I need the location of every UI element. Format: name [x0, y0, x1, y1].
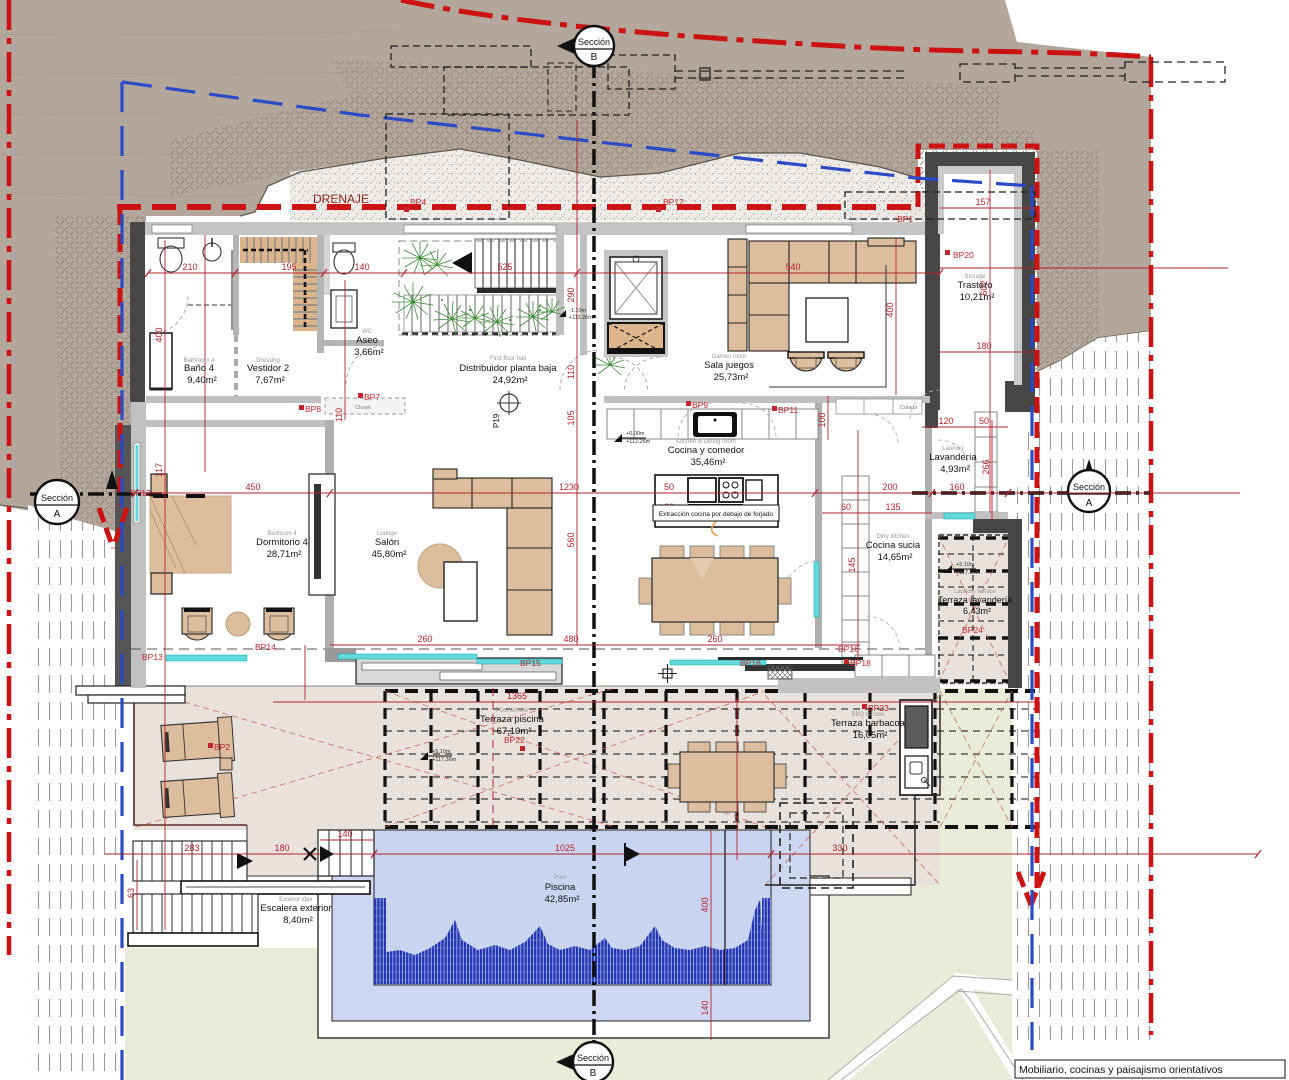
svg-text:540: 540 [785, 262, 800, 272]
svg-text:157: 157 [975, 197, 990, 207]
svg-text:Cocina sucia: Cocina sucia [866, 540, 921, 551]
svg-text:BP16: BP16 [740, 658, 761, 668]
svg-text:BP16: BP16 [838, 644, 859, 654]
svg-text:135: 135 [885, 502, 900, 512]
svg-text:400: 400 [154, 327, 164, 342]
svg-text:Piscina: Piscina [545, 882, 576, 893]
svg-text:Trastero: Trastero [957, 280, 992, 291]
svg-text:+117.36m: +117.36m [432, 757, 457, 763]
svg-text:Sección: Sección [1073, 482, 1105, 492]
svg-text:140: 140 [337, 829, 352, 839]
svg-text:Sección: Sección [578, 37, 610, 47]
svg-text:117: 117 [154, 463, 164, 477]
svg-text:BP18: BP18 [850, 658, 871, 668]
svg-text:Cocina y comedor: Cocina y comedor [668, 445, 745, 456]
svg-text:1025: 1025 [555, 843, 575, 853]
svg-text:3,66m²: 3,66m² [354, 347, 384, 358]
svg-text:Terraza barbacoa: Terraza barbacoa [831, 718, 906, 729]
svg-text:9,40m²: 9,40m² [187, 375, 217, 386]
svg-text:Pool: Pool [554, 875, 566, 881]
svg-text:400: 400 [700, 897, 710, 912]
svg-text:+111.26m: +111.26m [569, 315, 593, 321]
svg-text:195: 195 [281, 262, 296, 272]
svg-text:BP9: BP9 [692, 400, 708, 410]
svg-text:A: A [1086, 498, 1093, 509]
svg-text:8,40m²: 8,40m² [283, 915, 313, 926]
svg-text:25,73m²: 25,73m² [714, 372, 749, 383]
svg-text:35,46m²: 35,46m² [691, 457, 726, 468]
svg-text:480: 480 [563, 634, 578, 644]
svg-text:50: 50 [979, 416, 989, 426]
svg-text:7,67m²: 7,67m² [255, 375, 285, 386]
svg-text:Closet: Closet [355, 405, 371, 411]
svg-text:+5.10m: +5.10m [432, 749, 451, 755]
svg-text:BP14: BP14 [255, 642, 276, 652]
svg-text:P19: P19 [492, 413, 501, 428]
svg-text:560: 560 [566, 532, 576, 547]
svg-text:Escalera exterior: Escalera exterior [260, 903, 331, 914]
svg-text:Lavandería: Lavandería [929, 452, 977, 463]
svg-text:BP12: BP12 [130, 488, 151, 498]
svg-text:BP1: BP1 [897, 214, 913, 224]
svg-text:BP2: BP2 [214, 742, 230, 752]
svg-text:Sección: Sección [577, 1053, 609, 1063]
svg-text:525: 525 [497, 262, 512, 272]
svg-text:24,92m²: 24,92m² [493, 375, 528, 386]
svg-text:-1.10m: -1.10m [569, 308, 587, 314]
svg-text:BP12: BP12 [663, 197, 684, 207]
svg-text:4,93m²: 4,93m² [940, 464, 970, 475]
svg-text:110: 110 [334, 408, 344, 422]
svg-text:BP22: BP22 [504, 735, 525, 745]
svg-text:A: A [54, 509, 61, 520]
svg-text:160: 160 [949, 482, 964, 492]
svg-text:BP11: BP11 [778, 405, 798, 415]
svg-text:BP4: BP4 [410, 197, 426, 207]
svg-text:Terraza piscina: Terraza piscina [480, 714, 545, 725]
svg-text:Colada: Colada [900, 405, 918, 411]
svg-text:+112.26m: +112.26m [626, 439, 651, 445]
svg-text:B: B [591, 52, 598, 63]
svg-text:210: 210 [182, 262, 197, 272]
svg-text:Aseo: Aseo [356, 335, 378, 346]
svg-text:BP15: BP15 [520, 658, 541, 668]
svg-text:14,65m²: 14,65m² [878, 552, 913, 563]
svg-text:Terraza lavandería: Terraza lavandería [938, 595, 1013, 605]
svg-text:16,05m²: 16,05m² [853, 730, 888, 741]
svg-text:105: 105 [566, 410, 576, 425]
svg-text:260: 260 [417, 634, 432, 644]
svg-text:6,43m²: 6,43m² [963, 606, 991, 616]
svg-text:+5.10m: +5.10m [956, 562, 975, 568]
svg-text:120: 120 [938, 416, 953, 426]
svg-text:45,80m²: 45,80m² [372, 549, 407, 560]
svg-text:Salón: Salón [375, 537, 399, 548]
svg-text:+117.36m: +117.36m [956, 570, 981, 576]
svg-text:450: 450 [245, 482, 260, 492]
svg-text:50: 50 [664, 482, 674, 492]
svg-text:B: B [590, 1068, 597, 1079]
svg-text:400: 400 [885, 302, 895, 317]
svg-text:330: 330 [832, 843, 847, 853]
svg-text:10,21m²: 10,21m² [960, 292, 995, 303]
svg-text:Distribuidor planta baja: Distribuidor planta baja [459, 363, 557, 374]
svg-text:145: 145 [847, 557, 857, 572]
svg-text:+0.00m: +0.00m [626, 431, 645, 437]
svg-text:BP20: BP20 [953, 250, 974, 260]
svg-text:28,71m²: 28,71m² [267, 549, 302, 560]
svg-text:180: 180 [976, 341, 991, 351]
svg-text:DRENAJE: DRENAJE [313, 192, 369, 206]
svg-text:266: 266 [981, 459, 991, 474]
svg-text:BP8: BP8 [305, 404, 321, 414]
svg-text:140: 140 [700, 1000, 710, 1015]
svg-text:290: 290 [566, 287, 576, 302]
svg-text:Baño 4: Baño 4 [184, 363, 214, 374]
svg-text:Sala juegos: Sala juegos [704, 360, 754, 371]
svg-text:63: 63 [126, 888, 136, 898]
svg-text:BP24: BP24 [962, 625, 983, 635]
svg-text:BP23: BP23 [868, 703, 889, 713]
svg-text:Extracción cocina por debajo d: Extracción cocina por debajo de forjado [659, 511, 774, 518]
svg-text:BP13: BP13 [142, 652, 163, 662]
svg-text:BP7: BP7 [364, 392, 380, 402]
svg-text:110: 110 [566, 365, 576, 379]
svg-text:1230: 1230 [559, 482, 579, 492]
svg-text:260: 260 [707, 634, 722, 644]
svg-text:200: 200 [882, 482, 897, 492]
svg-text:Vestidor 2: Vestidor 2 [247, 363, 289, 374]
svg-text:283: 283 [184, 843, 199, 853]
svg-text:100: 100 [817, 412, 827, 427]
svg-text:First floor hall: First floor hall [490, 356, 526, 362]
svg-text:180: 180 [274, 843, 289, 853]
svg-text:60: 60 [841, 502, 851, 512]
svg-text:Sección: Sección [41, 493, 73, 503]
svg-text:Dormitorio 4: Dormitorio 4 [256, 537, 308, 548]
svg-text:42,85m²: 42,85m² [545, 894, 580, 905]
svg-text:1365: 1365 [507, 691, 527, 701]
svg-text:Mobiliario, cocinas y paisajis: Mobiliario, cocinas y paisajismo orienta… [1019, 1064, 1223, 1076]
svg-text:140: 140 [354, 262, 369, 272]
